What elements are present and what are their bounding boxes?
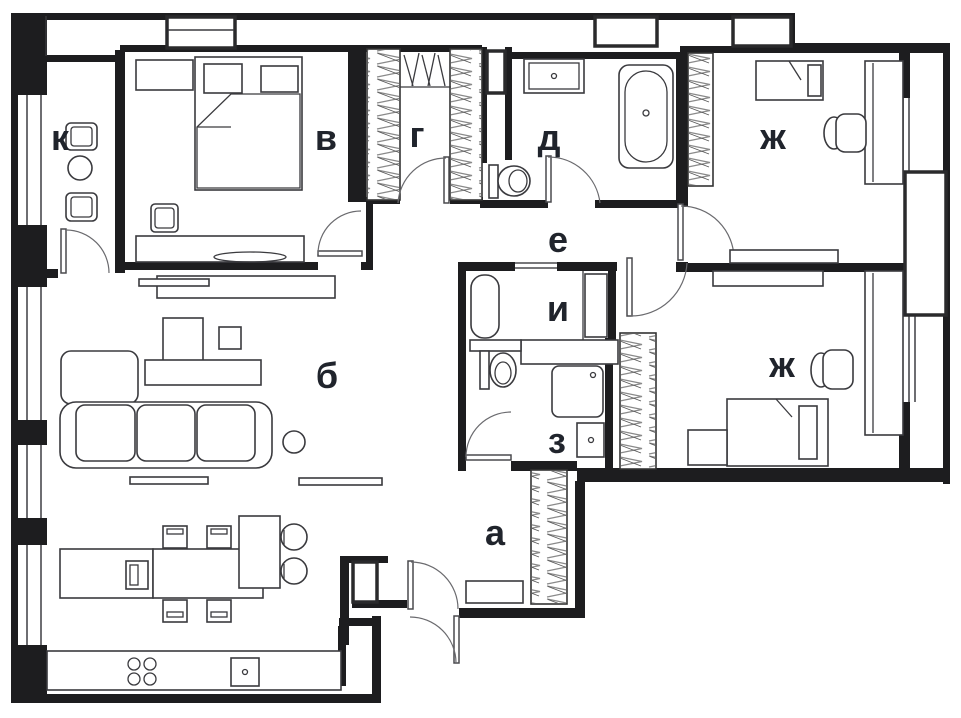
- closet: [136, 60, 193, 90]
- washer: [585, 274, 607, 337]
- drying-rack: [471, 275, 499, 338]
- door-d: [546, 156, 600, 203]
- desk: [865, 271, 903, 435]
- low-shelf: [130, 477, 208, 484]
- room-label-i: и: [547, 288, 569, 329]
- shaft-box-entry: [353, 562, 377, 602]
- duct-box-top-right: [733, 17, 791, 46]
- room-label-zh2: ж: [768, 344, 795, 385]
- duct-box-top-left: [167, 17, 235, 48]
- door-k: [61, 229, 109, 273]
- window-living-2: [27, 445, 41, 518]
- sofa-cushion: [137, 405, 195, 461]
- wardrobe-g-right: [450, 49, 482, 200]
- entrance-door: [408, 561, 459, 663]
- desk: [865, 61, 903, 184]
- kitchen-furniture: [47, 516, 341, 690]
- dresser: [136, 236, 304, 262]
- room-label-v: в: [315, 117, 337, 158]
- pillow: [261, 66, 298, 92]
- kitchen-sink: [231, 658, 259, 686]
- sofa-chaise: [61, 351, 138, 404]
- wardrobe-g-left: [367, 49, 400, 200]
- shaft-box-gd: [487, 51, 505, 93]
- bathtub: [619, 65, 673, 168]
- wardrobe-zh2: [620, 333, 656, 469]
- round-table: [68, 156, 92, 180]
- table-bench: [239, 516, 280, 588]
- room-label-a: а: [485, 512, 506, 553]
- shelf: [470, 340, 521, 351]
- pillow: [204, 64, 242, 93]
- floor-plan-svg: к в г д е ж и ж б з а: [0, 0, 961, 718]
- window-kitchen: [27, 545, 41, 645]
- wall-shelf: [713, 271, 823, 286]
- floor-plan-page: к в г д е ж и ж б з а: [0, 0, 961, 718]
- wardrobe-zh1: [688, 53, 713, 186]
- hall-furniture: [466, 581, 523, 603]
- door-z: [466, 412, 511, 460]
- side-table: [219, 327, 241, 349]
- window-k: [27, 95, 41, 225]
- sofa-cushion: [197, 405, 255, 461]
- room-z-furniture: [480, 351, 604, 457]
- wardrobe-hall: [531, 470, 567, 604]
- interior-window-i: [515, 261, 557, 271]
- door-zh1: [678, 204, 734, 260]
- door-g: [398, 157, 449, 203]
- window-zh2: [909, 315, 915, 402]
- room-label-k: к: [51, 117, 70, 158]
- bench: [466, 581, 523, 603]
- sideboard: [145, 360, 261, 385]
- vanity-sink: [524, 59, 584, 93]
- room-label-zh1: ж: [759, 116, 786, 157]
- desk-chair: [811, 350, 853, 389]
- nightstand: [688, 430, 727, 465]
- room-zh1-furniture: [730, 61, 903, 263]
- laundry-counter: [521, 340, 618, 364]
- room-label-g: г: [410, 114, 425, 155]
- window-living-1: [27, 287, 41, 420]
- desk-chair: [824, 114, 866, 152]
- sofa-cushion: [76, 405, 135, 461]
- shower: [552, 366, 603, 417]
- coffee-table: [283, 431, 305, 453]
- dining-chair: [163, 600, 187, 622]
- room-label-b: б: [316, 355, 338, 396]
- pillow: [808, 65, 821, 96]
- window-zh1: [903, 98, 909, 172]
- room-d-furniture: [489, 59, 673, 198]
- low-shelf: [299, 478, 382, 485]
- room-k-furniture: [66, 123, 97, 221]
- low-cabinet: [730, 250, 838, 263]
- window-bay-pillar: [905, 172, 946, 315]
- toilet: [489, 165, 530, 198]
- round-chair: [281, 524, 307, 550]
- room-v-furniture: [136, 57, 304, 262]
- small-sink: [577, 423, 604, 457]
- room-label-e: е: [548, 219, 568, 260]
- door-v: [318, 211, 362, 256]
- duct-box-top-mid: [595, 17, 657, 46]
- kitchen-counter: [47, 651, 341, 690]
- hanging-rail-g: [400, 53, 451, 87]
- room-label-d: д: [538, 117, 561, 158]
- dining-chair: [207, 600, 231, 622]
- room-zh2-furniture: [688, 271, 903, 466]
- soundbar: [139, 279, 209, 286]
- room-i-furniture: [470, 271, 618, 364]
- pillow: [799, 406, 817, 459]
- room-label-z: з: [548, 420, 566, 461]
- round-chair: [281, 558, 307, 584]
- toilet: [480, 351, 516, 389]
